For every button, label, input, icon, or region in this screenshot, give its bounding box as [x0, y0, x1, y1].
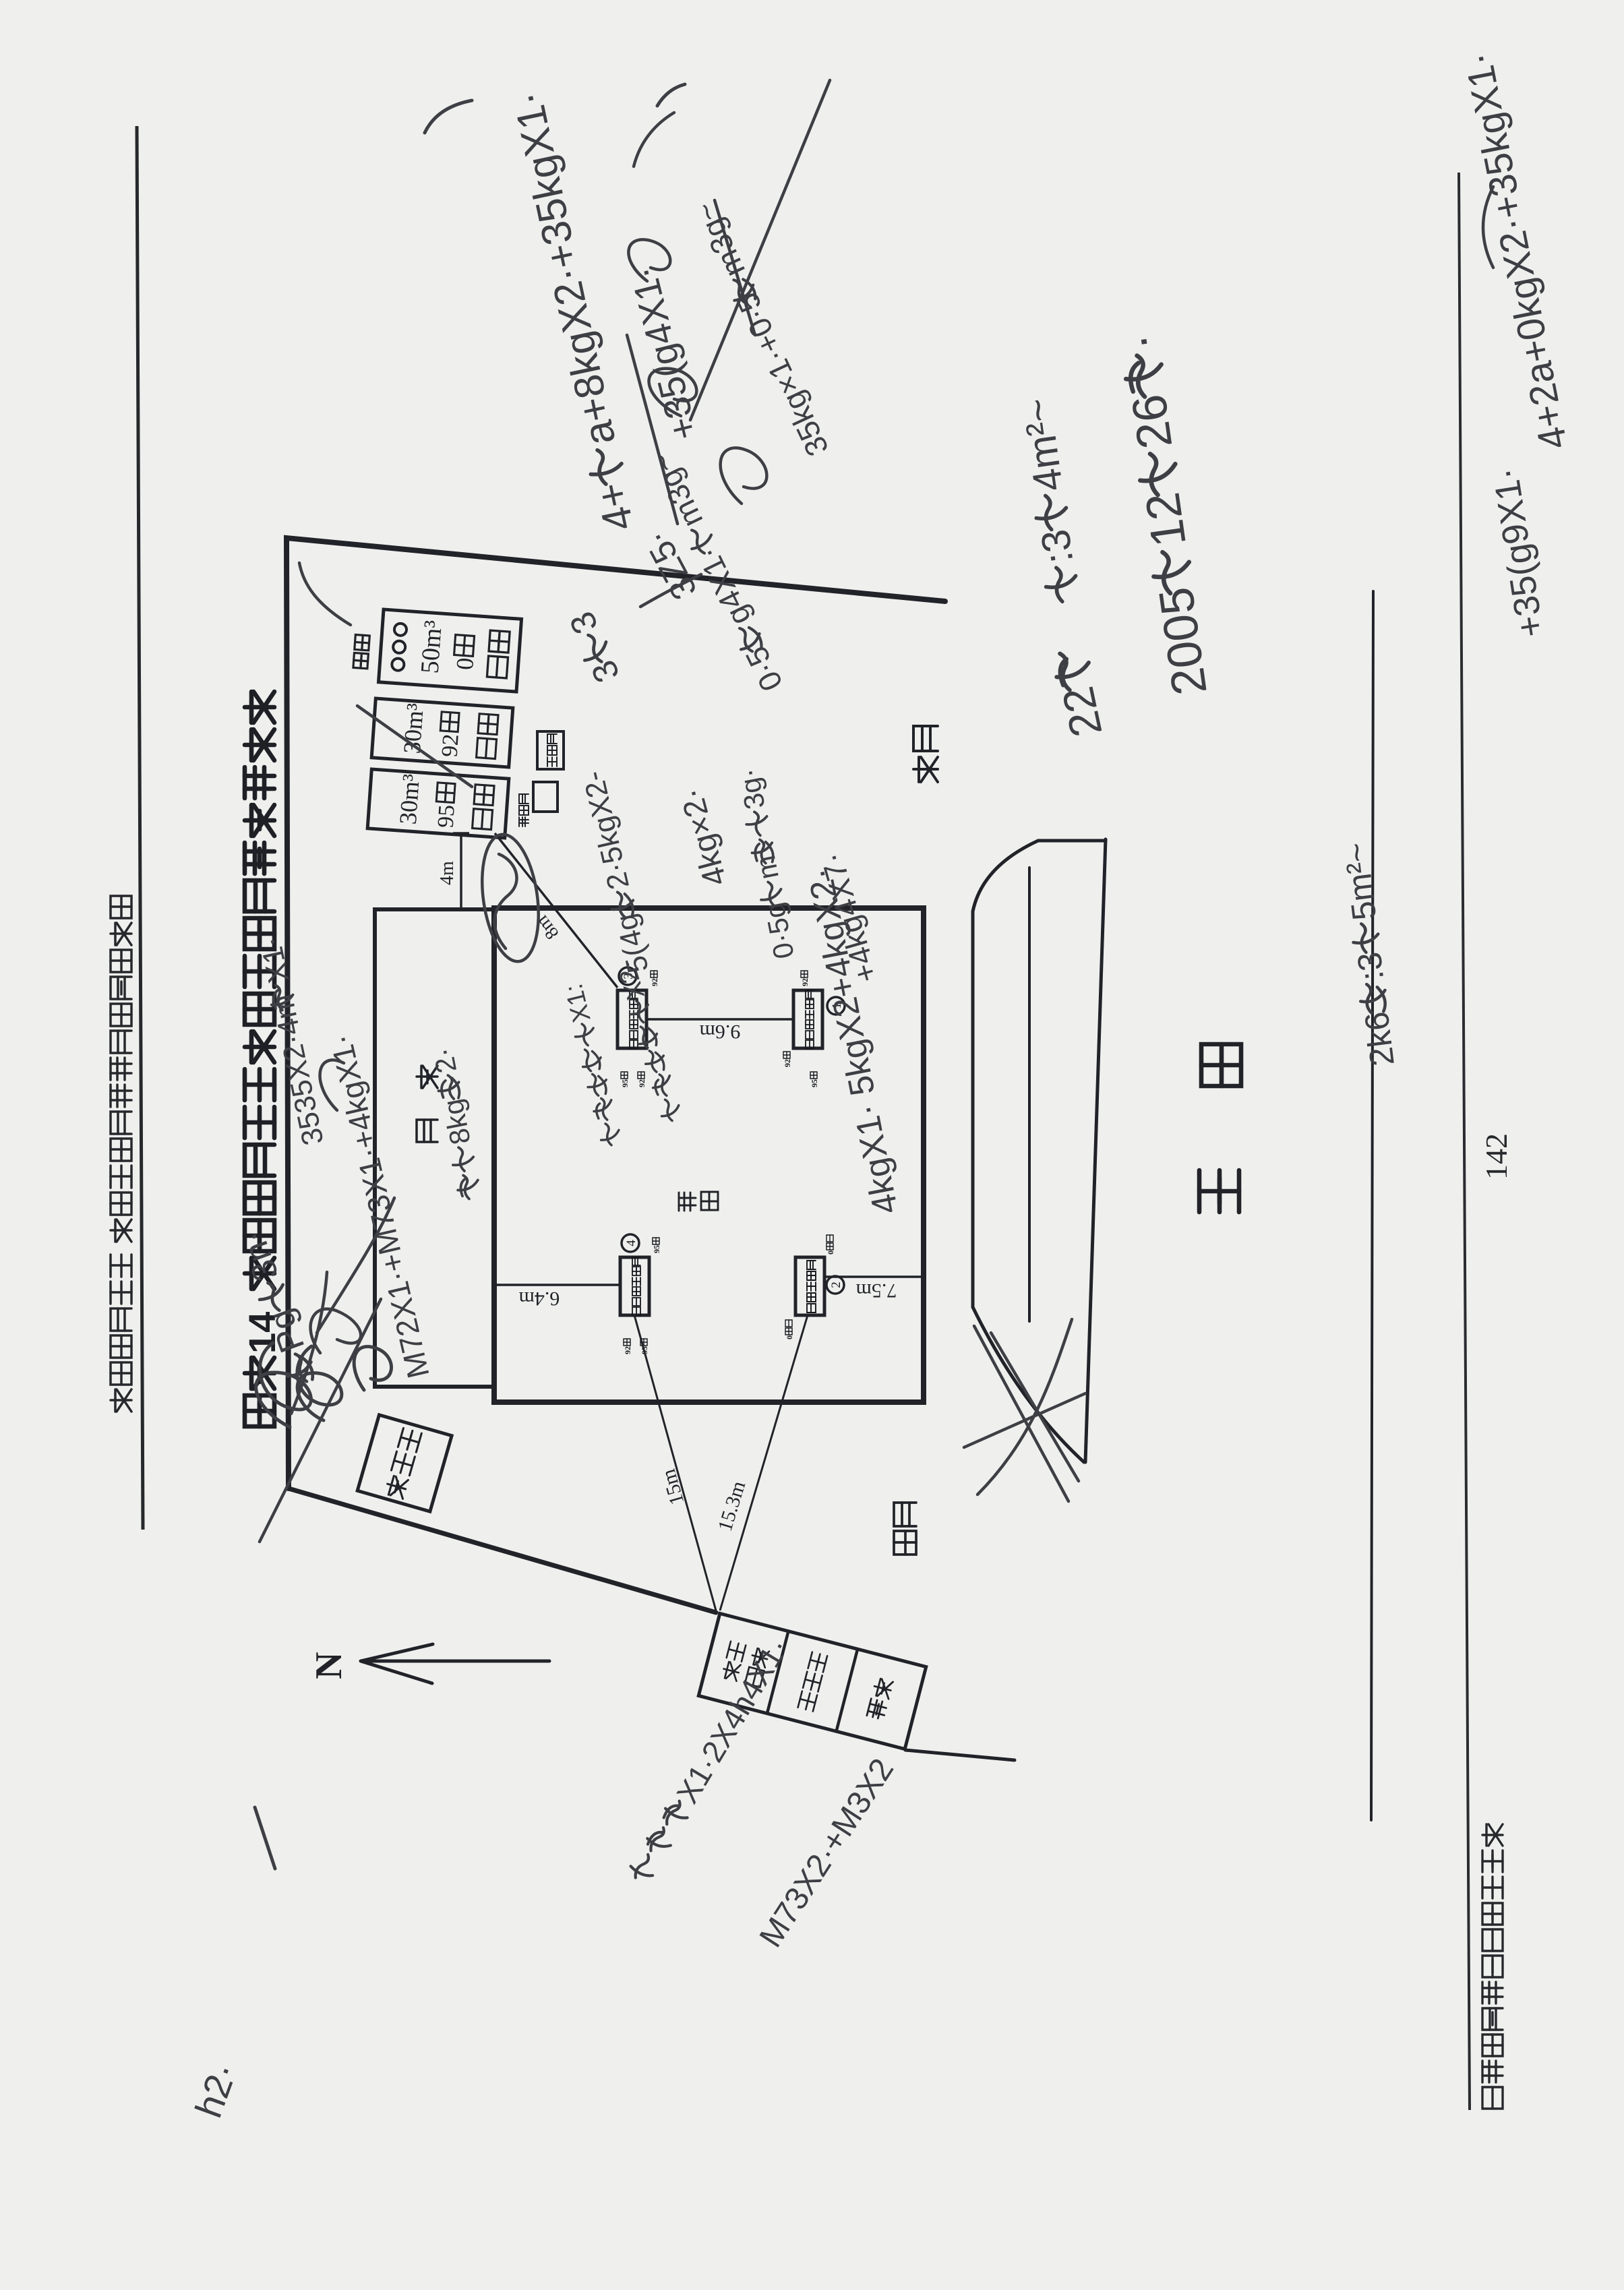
svg-text:2·: 2· [427, 1045, 462, 1076]
svg-text:h2·: h2· [187, 2057, 245, 2123]
svg-text:50m³: 50m³ [416, 620, 448, 675]
svg-text:26: 26 [1122, 391, 1182, 452]
svg-text:7.5m: 7.5m [856, 1279, 897, 1302]
svg-text:0: 0 [451, 657, 479, 671]
svg-text:8kg: 8kg [437, 1096, 477, 1147]
svg-text:3: 3 [562, 606, 606, 640]
svg-text:X1:: X1: [560, 981, 597, 1025]
svg-text:4+: 4+ [588, 479, 643, 535]
svg-text:4: 4 [624, 1240, 638, 1246]
svg-text:5m²~: 5m²~ [1337, 841, 1384, 922]
svg-text:2k6: 2k6 [1358, 1010, 1402, 1068]
svg-text:m: m [749, 853, 785, 882]
svg-text:4m: 4m [437, 861, 458, 885]
svg-text:142: 142 [1479, 1133, 1513, 1180]
svg-text:30m³: 30m³ [394, 773, 425, 826]
svg-text:a+8kgX2·+35kgX1·: a+8kgX2·+35kgX1· [504, 87, 625, 449]
svg-text:4m²~: 4m²~ [1014, 396, 1072, 494]
svg-text:92: 92 [623, 1346, 632, 1354]
svg-text:35kg×1·+0·5: 35kg×1·+0·5 [729, 287, 835, 461]
svg-text:2: 2 [829, 1282, 843, 1288]
svg-text:15m: 15m [657, 1467, 688, 1507]
svg-text:4kg×2·: 4kg×2· [673, 784, 734, 890]
svg-text:X1·2X4h4X1·: X1·2X4h4X1· [669, 1631, 795, 1809]
svg-text::3: :3 [1032, 526, 1081, 566]
svg-text:0: 0 [785, 1335, 794, 1339]
svg-text:92: 92 [800, 978, 810, 986]
svg-text::3: :3 [1350, 950, 1391, 982]
svg-text:95: 95 [433, 804, 460, 828]
svg-text:M72X1·+M73X1·+4kgX1·: M72X1·+M73X1·+4kgX1· [323, 1031, 436, 1381]
svg-text:3g·: 3g· [732, 766, 771, 812]
svg-text:2·5kgX2-: 2·5kgX2- [576, 768, 636, 893]
svg-text:9.6m: 9.6m [700, 1021, 741, 1043]
svg-text:N: N [308, 1652, 350, 1679]
svg-text:92: 92 [650, 978, 659, 986]
svg-text:12: 12 [1136, 489, 1197, 550]
svg-text:95: 95 [810, 1079, 819, 1087]
svg-text:92: 92 [637, 1079, 646, 1087]
svg-text:6.4m: 6.4m [519, 1288, 560, 1310]
svg-text:m3g~: m3g~ [687, 197, 752, 282]
svg-text:3n·: 3n· [233, 1225, 287, 1286]
svg-text:22: 22 [1052, 682, 1112, 741]
svg-text:0: 0 [826, 1251, 835, 1255]
svg-text:92: 92 [783, 1059, 792, 1067]
svg-text:4+2a+0kgX2·+35kgX1·: 4+2a+0kgX2·+35kgX1· [1456, 49, 1576, 453]
svg-text:·: · [1113, 330, 1169, 354]
svg-text:92: 92 [438, 733, 464, 758]
svg-text:2005: 2005 [1149, 584, 1217, 698]
svg-text:+35(g9X1·: +35(g9X1· [1485, 465, 1552, 640]
svg-text:M73X2·+M3X2: M73X2·+M3X2 [753, 1752, 901, 1953]
svg-text:95: 95 [652, 1245, 661, 1253]
svg-text:95: 95 [620, 1079, 630, 1087]
